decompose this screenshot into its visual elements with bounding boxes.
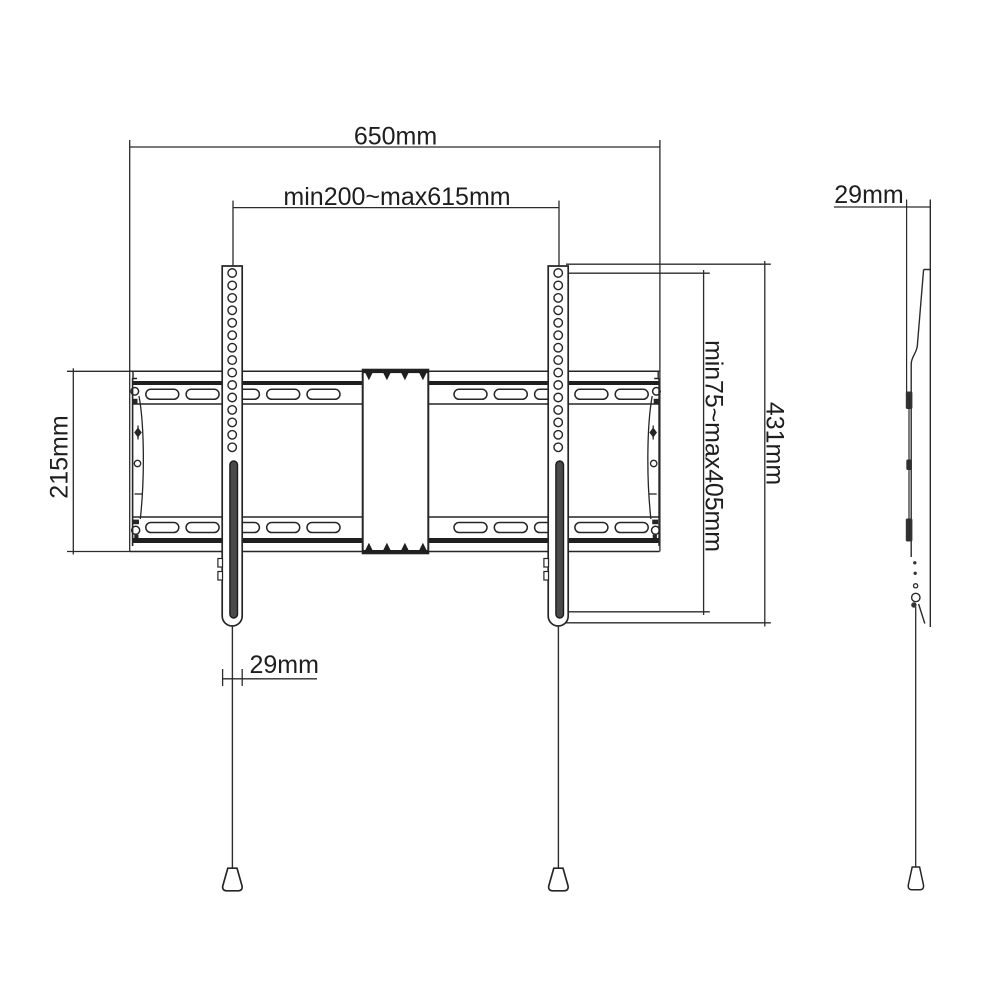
svg-text:min200~max615mm: min200~max615mm	[283, 183, 510, 211]
svg-text:215mm: 215mm	[46, 415, 74, 498]
svg-text:min75~max405mm: min75~max405mm	[700, 340, 728, 552]
svg-text:29mm: 29mm	[250, 651, 319, 679]
svg-text:431mm: 431mm	[761, 402, 789, 485]
svg-text:29mm: 29mm	[834, 181, 903, 209]
svg-text:650mm: 650mm	[354, 123, 437, 151]
